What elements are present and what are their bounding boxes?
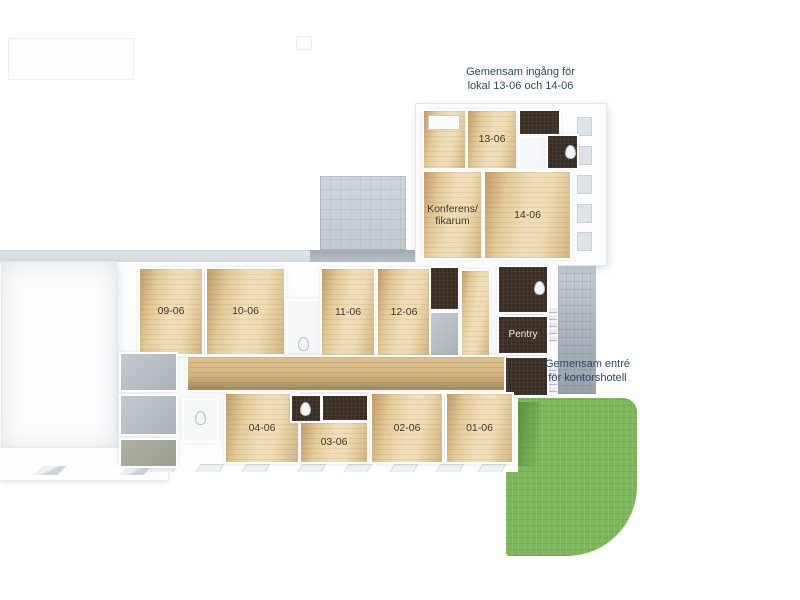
room-09-06-label: 09-06	[158, 305, 185, 317]
utility-wc-mid	[288, 301, 319, 356]
room-01-06-label: 01-06	[466, 422, 493, 434]
room-konferens: Konferens/fikarum	[424, 172, 481, 258]
room-pentry-label: Pentry	[509, 329, 538, 341]
corridor	[188, 357, 504, 390]
shelf-cell-1	[121, 354, 176, 390]
room-14-06-label: 14-06	[514, 209, 541, 221]
upper-store-room	[424, 111, 465, 168]
room-03-06-label: 03-06	[321, 436, 348, 448]
room-03-06: 03-06	[301, 423, 367, 462]
upper-entrance-annotation: Gemensam ingång för lokal 13-06 och 14-0…	[438, 66, 603, 94]
upper-entrance-line1: Gemensam ingång för	[438, 66, 603, 80]
desk-fixture	[428, 115, 460, 130]
upper-wc	[548, 136, 577, 168]
room-konferens-label: Konferens/fikarum	[427, 203, 478, 227]
room-13-06-label: 13-06	[479, 133, 506, 145]
room-04-06-label: 04-06	[249, 422, 276, 434]
upper-entrance-line2: lokal 13-06 och 14-06	[438, 80, 603, 94]
upper-hall	[520, 111, 559, 134]
room-10-06: 10-06	[207, 269, 284, 354]
room-01-06: 01-06	[447, 394, 512, 462]
room-04-06: 04-06	[226, 394, 298, 462]
main-entrance-annotation: Gemensam entré för kontorshotell	[540, 358, 635, 386]
room-13-06: 13-06	[468, 111, 516, 168]
store-gray	[431, 313, 458, 355]
toilet-fixture	[300, 402, 311, 416]
room-11-06: 11-06	[322, 269, 374, 355]
room-02-06-label: 02-06	[394, 422, 421, 434]
room-10-06-label: 10-06	[232, 305, 259, 317]
wc-west	[184, 400, 217, 441]
room-02-06: 02-06	[372, 394, 442, 462]
main-entrance-line2: för kontorshotell	[540, 372, 635, 386]
toilet-fixture	[565, 145, 576, 159]
upper-lobby	[520, 138, 545, 168]
shelf-cell-2	[121, 396, 176, 434]
toilet-fixture	[195, 411, 206, 425]
toilet-fixture	[298, 337, 309, 351]
room-12-06-label: 12-06	[391, 306, 418, 318]
room-14-06: 14-06	[485, 172, 570, 258]
shelf-cell-3	[121, 440, 176, 466]
wc-mid-b	[323, 396, 367, 420]
store-dark	[431, 268, 458, 309]
room-pentry: Pentry	[499, 317, 547, 353]
main-entrance-line1: Gemensam entré	[540, 358, 635, 372]
room-09-06: 09-06	[140, 269, 202, 354]
toilet-fixture	[534, 281, 545, 295]
room-11-06-label: 11-06	[335, 306, 361, 318]
wood-cell	[462, 271, 489, 355]
rooms-layer: 13-06Konferens/fikarum14-0609-0610-0611-…	[0, 0, 800, 600]
pentry-upper	[499, 267, 547, 312]
wc-mid-a	[292, 396, 320, 421]
room-12-06: 12-06	[378, 269, 430, 355]
